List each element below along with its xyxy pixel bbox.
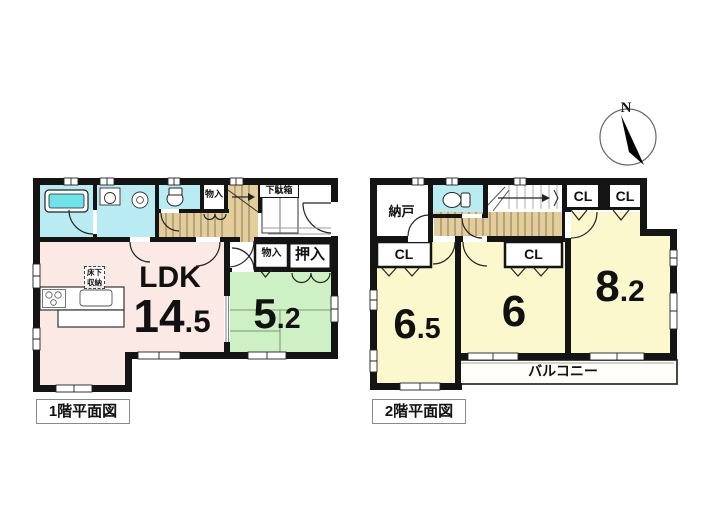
room-c-area-label: 8.2 xyxy=(576,265,664,309)
door-gap xyxy=(93,210,97,234)
kitchen-sink-icon xyxy=(80,290,112,306)
window xyxy=(230,178,243,185)
washer-icon xyxy=(132,192,148,208)
shoe-box-label: 下駄箱 xyxy=(259,184,299,198)
compass-north-label: N xyxy=(614,100,638,117)
stair-break-line xyxy=(486,187,509,211)
floor1-caption: 1階平面図 xyxy=(36,399,130,424)
door-gap xyxy=(196,237,220,242)
wall-segment xyxy=(428,185,433,236)
wall-segment xyxy=(370,178,647,185)
toilet2-icon xyxy=(443,193,461,208)
door-arc xyxy=(228,241,254,267)
closet-label-3: CL xyxy=(377,246,431,262)
room-a-area-label: 6.5 xyxy=(372,303,462,345)
tatami-area-label: 5.2 xyxy=(231,293,323,335)
wall-segment xyxy=(567,207,641,210)
closet-label-1: CL xyxy=(567,188,599,204)
wall-segment xyxy=(483,185,488,214)
balcony-label: バルコニー xyxy=(495,363,631,379)
sink-icon xyxy=(105,193,116,204)
closet-label-4: CL xyxy=(505,246,562,262)
wall-segment xyxy=(155,185,159,237)
storage-top-label: 物入 xyxy=(199,189,229,199)
door-gap xyxy=(408,236,428,242)
door-gap xyxy=(232,268,254,272)
door-gap xyxy=(565,212,571,238)
compass xyxy=(600,109,656,165)
storage-mid-label: 物入 xyxy=(256,248,287,260)
stair-step-lines xyxy=(509,185,557,209)
wall-segment xyxy=(254,237,338,242)
toilet2-tank-icon xyxy=(461,193,470,207)
door-gap xyxy=(130,237,150,242)
storage-room-label: 納戸 xyxy=(375,205,428,220)
bathtub-water xyxy=(49,194,84,208)
door-arc xyxy=(232,248,254,270)
door-gap xyxy=(331,202,338,236)
north-arrow-icon xyxy=(621,115,644,165)
oshiire-label: 押入 xyxy=(291,246,329,263)
underfloor-storage-label: 床下収納 xyxy=(84,266,105,289)
closet-label-2: CL xyxy=(609,188,641,204)
stairs1-lower-flight xyxy=(159,213,228,238)
room-b-area-label: 6 xyxy=(478,290,550,334)
floor2-caption: 2階平面図 xyxy=(372,399,466,424)
door-gap xyxy=(161,209,179,213)
toilet1-tank-icon xyxy=(169,188,182,195)
wall-segment xyxy=(640,178,647,235)
ldk-area-label: 14.5 xyxy=(112,293,232,339)
door-gap xyxy=(433,236,455,242)
door-gap xyxy=(462,214,482,218)
floorplan-canvas: N 物入 下駄箱 物入 押入 床下収納 LDK 14.5 5.2 1階平面図 納… xyxy=(0,0,705,525)
